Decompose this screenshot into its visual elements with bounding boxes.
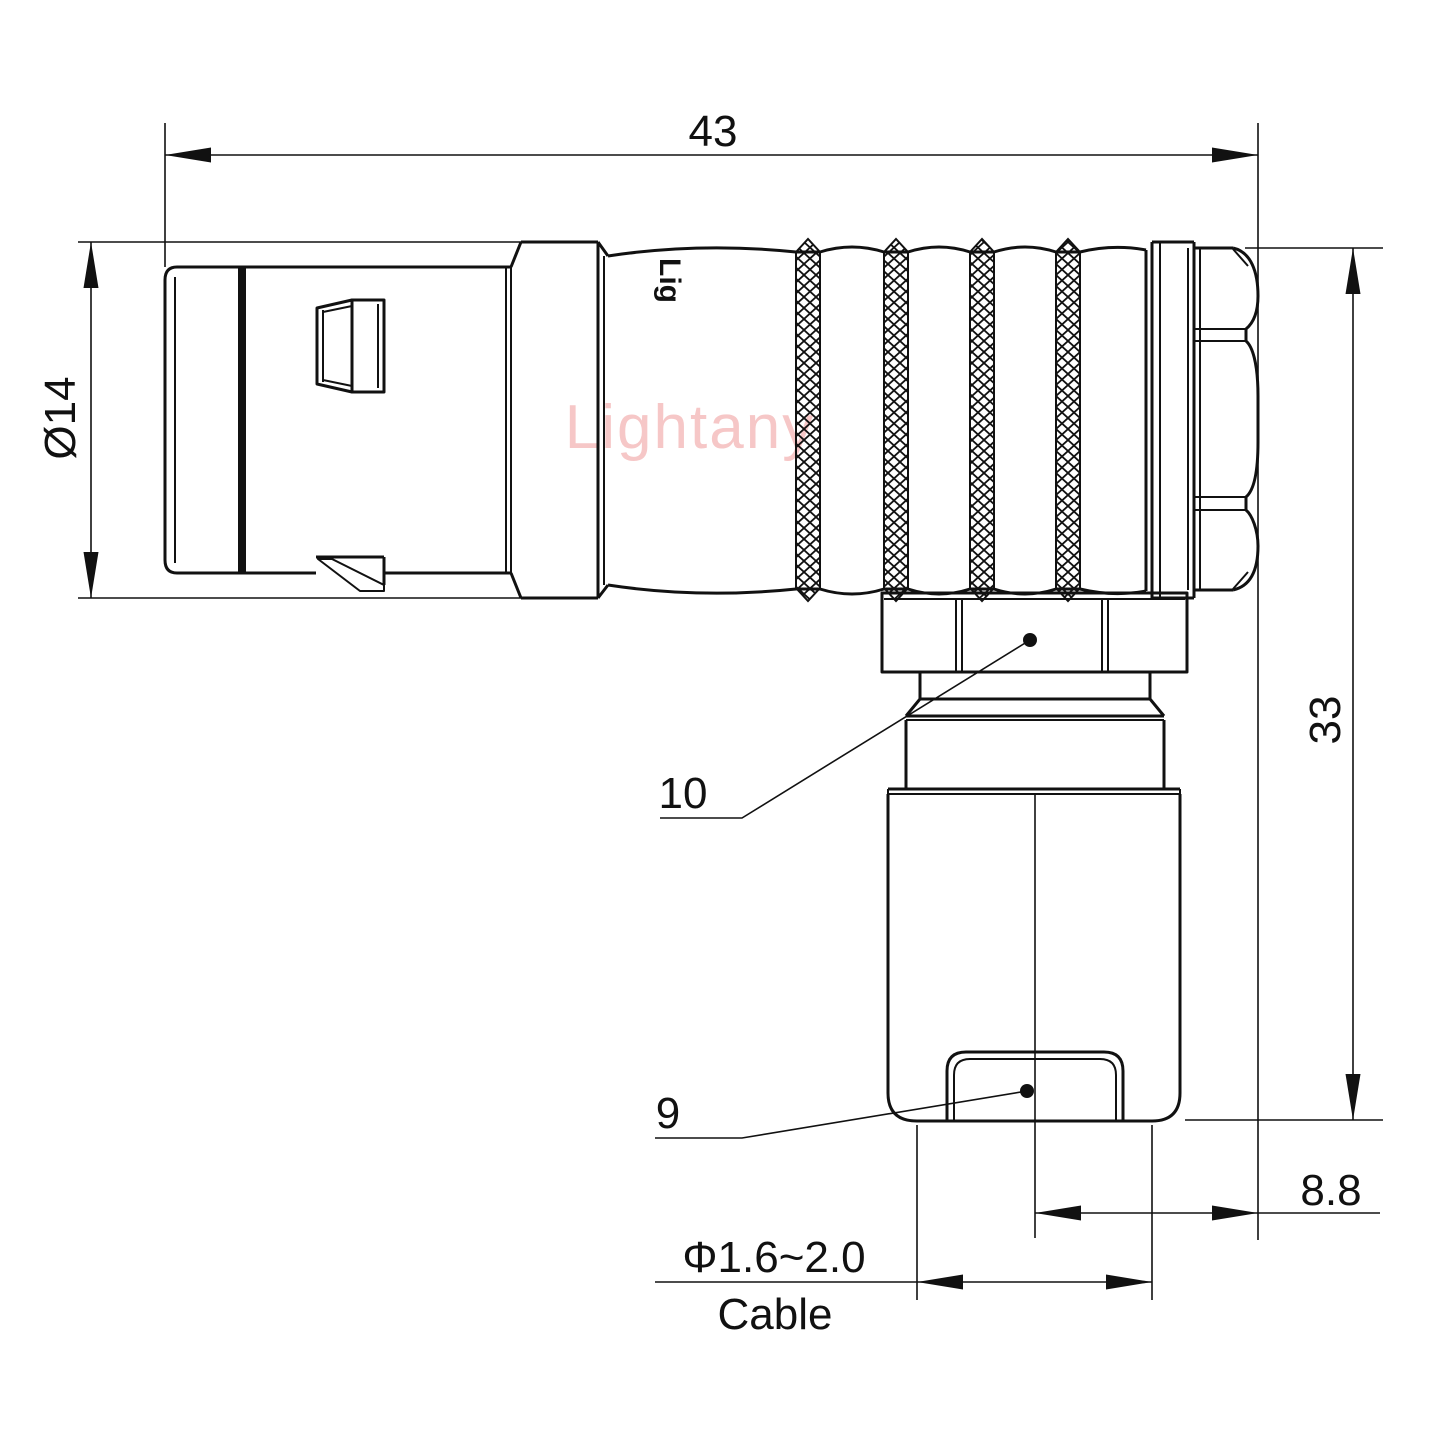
- arrowhead: [1212, 1206, 1258, 1221]
- knurl-band: [1056, 239, 1080, 601]
- rear-collar: [1152, 242, 1194, 598]
- watermark: Lightany: [565, 393, 815, 462]
- arrowhead: [1106, 1275, 1152, 1290]
- engineering-drawing-canvas: Lightany Lig: [0, 0, 1440, 1440]
- arrowhead: [165, 148, 211, 163]
- cable-range-value: Φ1.6~2.0: [682, 1233, 865, 1282]
- dimension-cable-diameter: Φ1.6~2.0 Cable: [655, 1125, 1152, 1339]
- leader-cable-clamp: 9: [655, 1084, 1034, 1138]
- arrowhead: [917, 1275, 963, 1290]
- knurl-band: [970, 239, 994, 601]
- lower-body-block: [888, 789, 1180, 1121]
- brand-marking: Lig: [653, 258, 686, 303]
- front-diameter-value: Ø14: [36, 376, 85, 459]
- strain-relief-nut: [1194, 248, 1258, 590]
- leader-dot: [1023, 633, 1037, 647]
- coupling-nut-ref: 10: [659, 769, 708, 818]
- neck-section: [906, 672, 1164, 789]
- arrowhead: [84, 552, 99, 598]
- overall-length-value: 43: [689, 107, 738, 156]
- dimension-front-diameter: Ø14: [36, 242, 521, 598]
- arrowhead: [84, 242, 99, 288]
- cable-word: Cable: [718, 1290, 833, 1339]
- arrowhead: [1346, 248, 1361, 294]
- rear-offset-value: 8.8: [1300, 1166, 1361, 1215]
- height-value: 33: [1301, 696, 1350, 745]
- latch-release-tab: [316, 557, 384, 591]
- knurl-band: [796, 239, 820, 601]
- leader-dot: [1020, 1084, 1034, 1098]
- connector-drawing: Lightany Lig: [0, 0, 1440, 1440]
- front-plug-shell: [165, 242, 521, 598]
- arrowhead: [1212, 148, 1258, 163]
- arrowhead: [1035, 1206, 1081, 1221]
- latch-key-window: [317, 300, 384, 392]
- front-ring-band: [238, 267, 246, 573]
- coupling-hex-nut: [882, 593, 1187, 672]
- dimension-height: 33: [1185, 248, 1383, 1120]
- arrowhead: [1346, 1074, 1361, 1120]
- cable-clamp-ref: 9: [656, 1089, 680, 1138]
- dimension-rear-offset: 8.8: [1035, 1166, 1380, 1221]
- knurl-band: [884, 239, 908, 601]
